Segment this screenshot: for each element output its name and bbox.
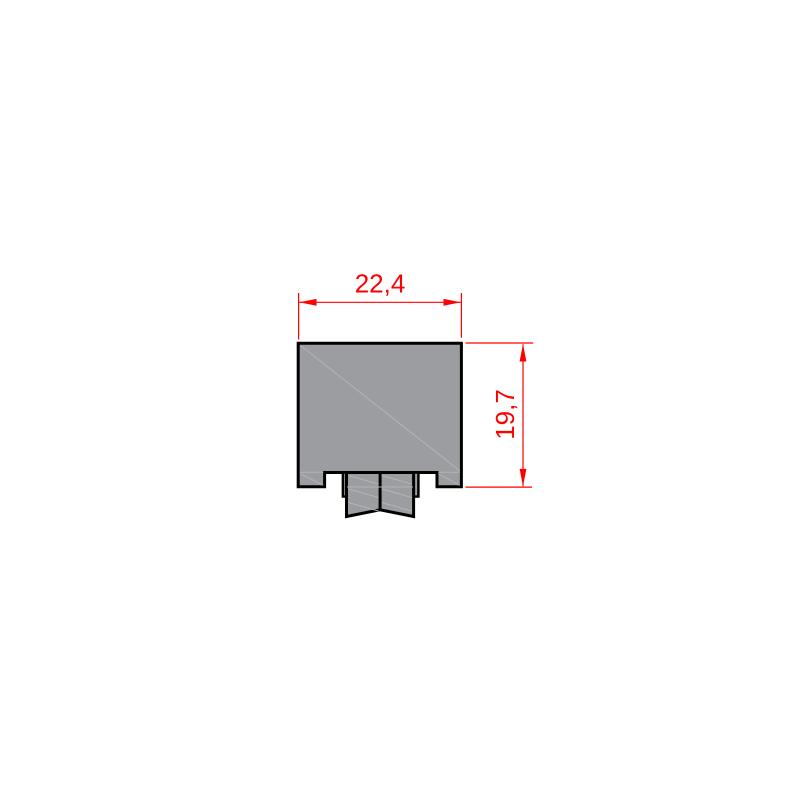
svg-text:19,7: 19,7 — [490, 389, 520, 440]
svg-text:22,4: 22,4 — [355, 269, 406, 299]
